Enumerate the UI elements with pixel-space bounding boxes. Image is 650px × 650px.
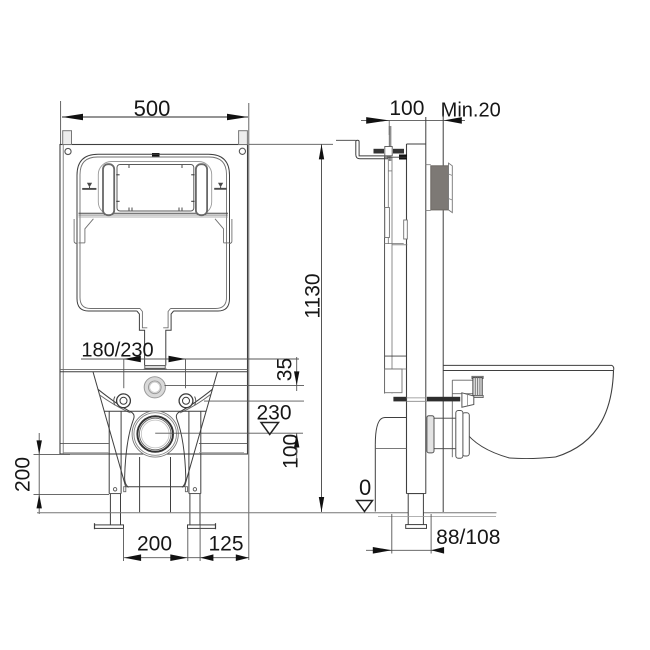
svg-text:35: 35 <box>274 358 297 381</box>
svg-text:100: 100 <box>280 434 303 469</box>
svg-text:1130: 1130 <box>302 273 325 318</box>
svg-text:Min.20: Min.20 <box>441 100 501 122</box>
svg-text:230: 230 <box>256 402 291 425</box>
svg-text:0: 0 <box>359 475 371 500</box>
svg-text:88/108: 88/108 <box>436 526 500 549</box>
svg-text:500: 500 <box>134 96 171 121</box>
svg-text:200: 200 <box>12 457 35 492</box>
svg-text:100: 100 <box>389 97 424 120</box>
svg-text:125: 125 <box>208 533 243 556</box>
svg-text:180/230: 180/230 <box>81 340 153 362</box>
svg-text:200: 200 <box>137 533 172 556</box>
